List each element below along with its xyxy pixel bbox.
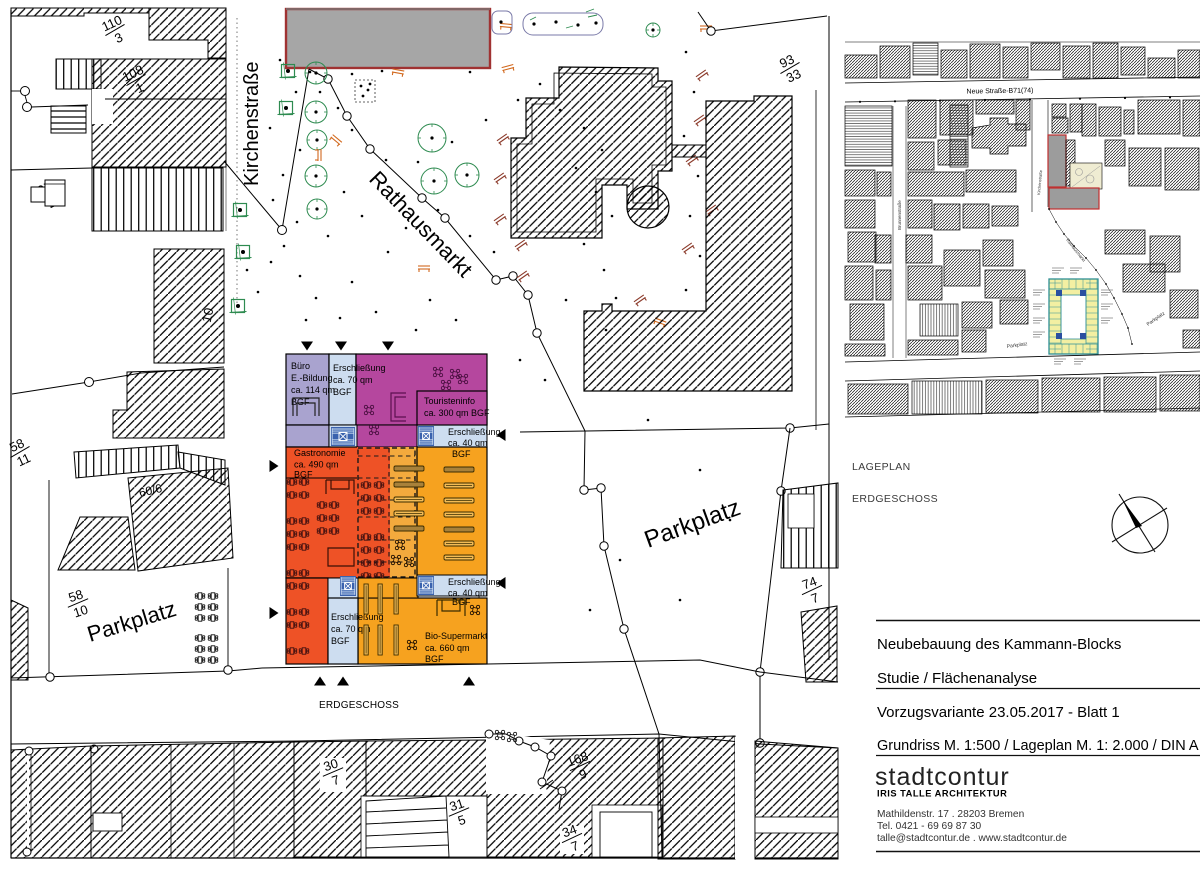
svg-text:ca. 114 qm: ca. 114 qm — [291, 385, 335, 395]
svg-text:BGF: BGF — [452, 449, 471, 459]
svg-text:10: 10 — [199, 306, 217, 323]
svg-text:BGF: BGF — [333, 387, 352, 397]
svg-text:talle@stadtcontur.de . www.sta: talle@stadtcontur.de . www.stadtcontur.d… — [877, 833, 1067, 844]
svg-text:ca. 300 qm BGF: ca. 300 qm BGF — [424, 408, 490, 418]
svg-text:LAGEPLAN: LAGEPLAN — [852, 461, 911, 473]
svg-text:Vorzugsvariante 23.05.2017 - B: Vorzugsvariante 23.05.2017 - Blatt 1 — [877, 704, 1120, 721]
svg-text:Erschließung: Erschließung — [331, 612, 384, 622]
svg-text:Studie / Flächenanalyse: Studie / Flächenanalyse — [877, 670, 1037, 687]
svg-text:Neubebauung des Kammann-Blocks: Neubebauung des Kammann-Blocks — [877, 636, 1121, 653]
svg-text:ERDGESCHOSS: ERDGESCHOSS — [319, 700, 399, 711]
svg-text:BGF: BGF — [425, 654, 444, 664]
svg-text:BGF: BGF — [452, 597, 471, 607]
svg-text:stadtcontur: stadtcontur — [875, 763, 1010, 791]
svg-text:IRIS TALLE ARCHITEKTUR: IRIS TALLE ARCHITEKTUR — [877, 789, 1007, 799]
svg-text:BGF: BGF — [294, 470, 313, 480]
svg-text:Neue Straße-B71(74): Neue Straße-B71(74) — [966, 87, 1033, 95]
svg-text:Mathildenstr. 17 . 28203 Breme: Mathildenstr. 17 . 28203 Bremen — [877, 809, 1024, 820]
svg-text:Grundriss M. 1:500 / Lageplan: Grundriss M. 1:500 / Lageplan M. 1: 2.00… — [877, 738, 1199, 754]
svg-text:BGF: BGF — [331, 636, 350, 646]
svg-text:Kirchenstraße: Kirchenstraße — [241, 62, 263, 187]
svg-text:Gastronomie: Gastronomie — [294, 448, 346, 458]
svg-text:ERDGESCHOSS: ERDGESCHOSS — [852, 493, 938, 505]
svg-text:ca. 70 qm: ca. 70 qm — [333, 375, 373, 385]
svg-text:Bio-Supermarkt: Bio-Supermarkt — [425, 631, 488, 641]
svg-text:Touristeninfo: Touristeninfo — [424, 396, 475, 406]
svg-text:Brunnenstraße: Brunnenstraße — [897, 200, 902, 230]
svg-text:Erschließung: Erschließung — [448, 427, 501, 437]
svg-text:Tel. 0421 - 69 69 87 30: Tel. 0421 - 69 69 87 30 — [877, 821, 982, 832]
svg-text:E.-Bildung: E.-Bildung — [291, 373, 333, 383]
svg-text:ca. 490 qm: ca. 490 qm — [294, 460, 339, 470]
svg-text:ca. 660 qm: ca. 660 qm — [425, 643, 470, 653]
svg-text:Büro: Büro — [291, 361, 310, 371]
svg-text:Erschließung: Erschließung — [448, 577, 501, 587]
svg-text:Erschließung: Erschließung — [333, 363, 386, 373]
